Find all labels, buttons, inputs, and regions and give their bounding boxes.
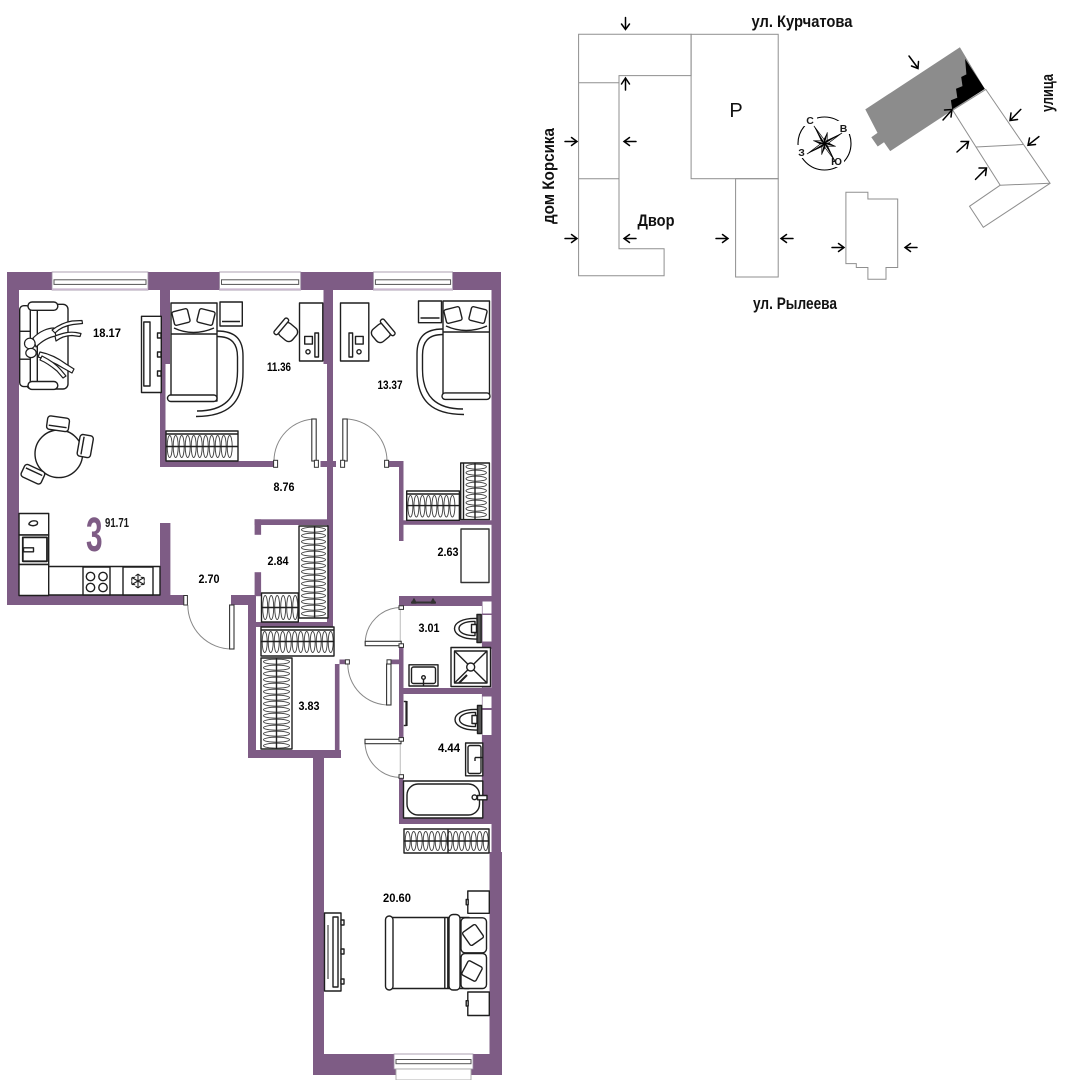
svg-text:2.84: 2.84 xyxy=(268,556,290,568)
svg-text:Ю: Ю xyxy=(831,156,842,168)
svg-text:20.60: 20.60 xyxy=(383,893,411,905)
svg-text:18.17: 18.17 xyxy=(93,328,121,340)
svg-text:2.63: 2.63 xyxy=(438,547,459,559)
svg-text:С: С xyxy=(806,115,814,127)
svg-text:3: 3 xyxy=(86,509,103,562)
svg-text:11.36: 11.36 xyxy=(267,362,291,374)
svg-text:91.71: 91.71 xyxy=(105,515,129,530)
svg-text:ул. Рылеева: ул. Рылеева xyxy=(753,294,837,313)
svg-text:13.37: 13.37 xyxy=(378,380,403,392)
svg-text:улица: улица xyxy=(1038,74,1057,112)
svg-text:3.01: 3.01 xyxy=(419,623,441,635)
svg-text:3.83: 3.83 xyxy=(299,701,320,713)
svg-text:дом Корсика: дом Корсика xyxy=(539,128,558,224)
svg-text:4.44: 4.44 xyxy=(438,743,461,755)
svg-text:ул. Курчатова: ул. Курчатова xyxy=(752,12,853,31)
svg-text:З: З xyxy=(798,147,805,159)
svg-text:8.76: 8.76 xyxy=(274,482,295,494)
svg-text:2.70: 2.70 xyxy=(199,574,220,586)
svg-text:В: В xyxy=(840,123,848,135)
svg-text:Двор: Двор xyxy=(638,211,675,230)
svg-text:Р: Р xyxy=(729,100,742,122)
